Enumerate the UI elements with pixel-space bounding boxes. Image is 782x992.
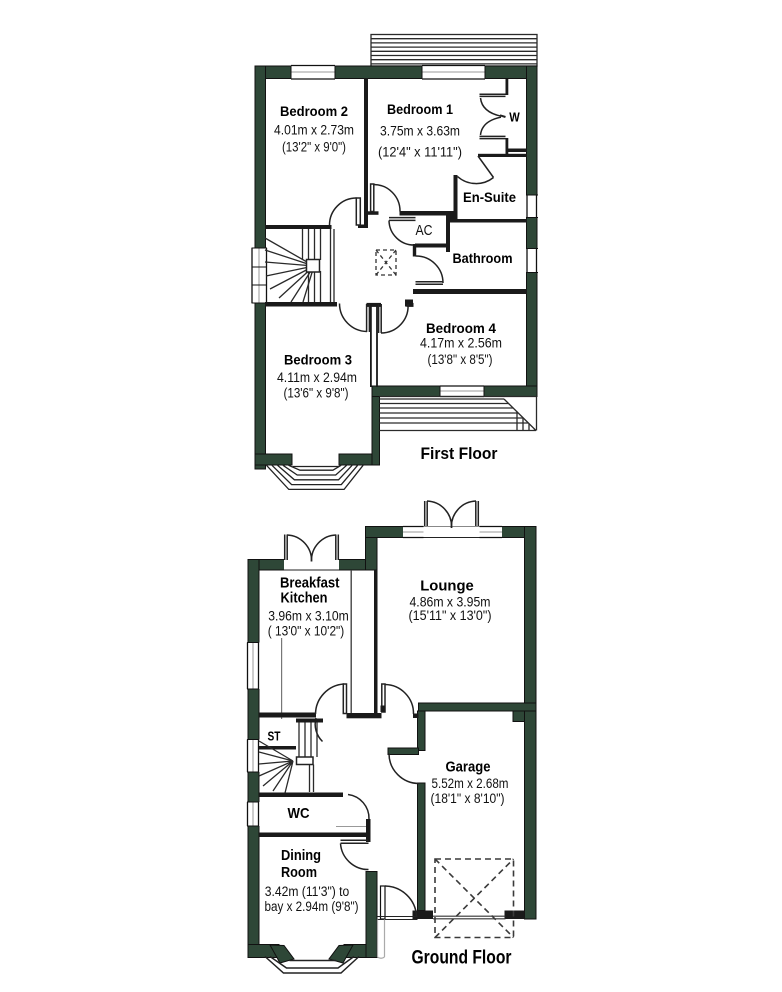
svg-text:First Floor: First Floor: [421, 444, 498, 463]
svg-text:Ground Floor: Ground Floor: [412, 948, 512, 969]
svg-text:(13'8" x 8'5"): (13'8" x 8'5"): [428, 352, 493, 367]
svg-text:4.17m x 2.56m: 4.17m x 2.56m: [420, 336, 502, 351]
svg-text:(13'6" x 9'8"): (13'6" x 9'8"): [284, 386, 349, 401]
svg-text:Lounge: Lounge: [420, 579, 474, 595]
svg-text:Kitchen: Kitchen: [281, 591, 328, 607]
svg-text:3.96m x 3.10m: 3.96m x 3.10m: [268, 609, 349, 624]
svg-text:W: W: [509, 110, 520, 125]
svg-text:3.42m (11'3") to: 3.42m (11'3") to: [265, 884, 350, 899]
svg-text:bay x 2.94m (9'8"): bay x 2.94m (9'8"): [265, 899, 359, 914]
svg-text:Bathroom: Bathroom: [453, 250, 513, 266]
svg-text:Garage: Garage: [446, 760, 491, 776]
svg-text:Room: Room: [281, 865, 317, 881]
svg-text:(15'11" x 13'0"): (15'11" x 13'0"): [409, 608, 492, 623]
svg-text:ST: ST: [268, 730, 281, 744]
svg-text:Bedroom 1: Bedroom 1: [387, 101, 453, 117]
svg-text:WC: WC: [288, 805, 310, 822]
svg-text:Bedroom 2: Bedroom 2: [280, 103, 348, 119]
svg-text:En-Suite: En-Suite: [463, 190, 516, 205]
svg-text:Breakfast: Breakfast: [280, 576, 340, 592]
svg-text:5.52m x 2.68m: 5.52m x 2.68m: [432, 776, 509, 791]
svg-text:AC: AC: [416, 223, 433, 239]
svg-text:( 13'0" x 10'2"): ( 13'0" x 10'2"): [268, 624, 345, 639]
svg-text:4.01m x 2.73m: 4.01m x 2.73m: [274, 123, 354, 138]
svg-text:3.75m x 3.63m: 3.75m x 3.63m: [380, 124, 460, 139]
svg-text:(18'1" x 8'10"): (18'1" x 8'10"): [431, 791, 505, 806]
svg-text:(12'4" x 11'11"): (12'4" x 11'11"): [378, 145, 462, 160]
svg-text:Dining: Dining: [281, 848, 321, 864]
svg-text:(13'2" x 9'0"): (13'2" x 9'0"): [282, 140, 346, 155]
svg-text:Bedroom 3: Bedroom 3: [284, 352, 352, 368]
svg-text:4.11m x 2.94m: 4.11m x 2.94m: [277, 370, 357, 385]
svg-text:Bedroom 4: Bedroom 4: [426, 320, 496, 336]
